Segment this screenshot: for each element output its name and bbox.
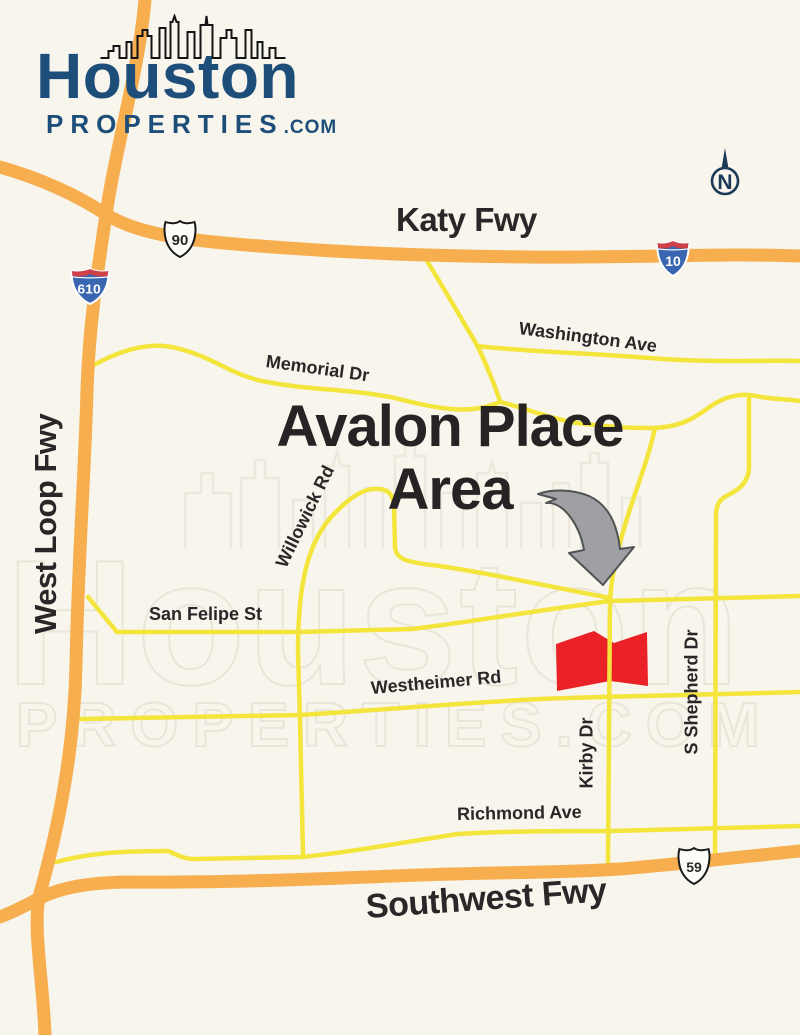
label-richmond-ave: Richmond Ave [457, 802, 582, 825]
logo-properties-text: PROPERTIES [46, 109, 284, 139]
label-katy-fwy: Katy Fwy [396, 201, 537, 239]
logo-brand-properties: PROPERTIES.COM [46, 111, 337, 137]
svg-text:610: 610 [77, 282, 100, 296]
street-roads [56, 261, 800, 868]
avalon-place-area-polygon [556, 631, 648, 691]
us90-shield: 90 [164, 221, 195, 257]
svg-text:10: 10 [665, 253, 681, 269]
compass-icon: N [712, 148, 738, 194]
road-katy-branch [427, 261, 500, 401]
label-west-loop-fwy: West Loop Fwy [28, 414, 64, 634]
map-title-line2: Area [100, 461, 800, 519]
label-san-felipe-st: San Felipe St [149, 604, 262, 625]
logo-brand-houston: Houston [36, 44, 299, 108]
i10-shield: 10 [657, 241, 688, 276]
svg-text:90: 90 [172, 232, 189, 249]
map-title-line1: Avalon Place [100, 398, 800, 456]
svg-text:59: 59 [686, 859, 702, 875]
label-kirby-dr: Kirby Dr [577, 717, 598, 788]
logo-tld-text: .COM [284, 117, 338, 138]
us59-shield: 59 [678, 848, 709, 884]
svg-text:N: N [717, 171, 732, 194]
map-canvas: Houston PROPERTIES.COM [0, 0, 800, 1035]
i610-shield: 610 [72, 269, 109, 304]
label-s-shepherd-dr: S Shepherd Dr [682, 629, 703, 754]
compass-needle [722, 148, 729, 169]
